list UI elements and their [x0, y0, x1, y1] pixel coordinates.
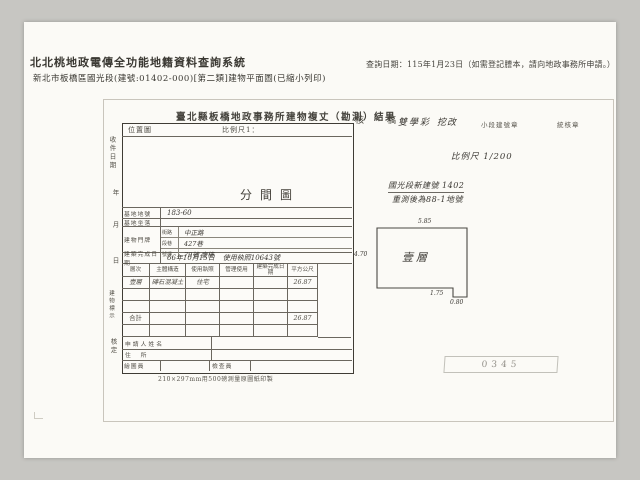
grid-cell-total-label: 合計: [122, 313, 150, 325]
checker-label: 檢查員: [210, 360, 251, 371]
grid-cell: [254, 325, 288, 337]
margin-label-building-mark: 建物標示: [107, 290, 115, 320]
grid-cell: [122, 289, 150, 301]
grid-cell: 住宅: [186, 277, 220, 289]
drafter-value: [161, 360, 210, 371]
grid-cell: [186, 325, 220, 337]
grid-cell: 壹層: [122, 277, 150, 289]
note-new-building-number: 國光段新建號 1402: [388, 180, 464, 193]
grid-cell: [254, 289, 288, 301]
grid-header-floor: 層次: [122, 264, 150, 277]
floor-plan-label: 分間圖: [240, 186, 300, 203]
grid-cell: [220, 289, 254, 301]
paper-spec-note: 210×297mm用500磅測量原圖紙印製: [158, 374, 273, 383]
scale-label: 比例尺1：: [222, 125, 259, 135]
door-sub-street: 街路 中正路: [161, 227, 352, 238]
completion-date-label: 建築完成日期: [122, 253, 161, 263]
serial-number-stamp: 0345: [443, 356, 558, 373]
measurement-grid: 層次 主體構造 使用執照 管理使用 建築完成日期 平方公尺 壹層 磚石混凝土 住…: [122, 264, 318, 337]
applicant-name-label: 申請人姓名: [122, 337, 212, 349]
dimension-notch: 0.80: [450, 299, 463, 306]
grid-cell: 26.87: [288, 277, 318, 289]
margin-label-day: 日: [110, 257, 120, 266]
lane-value: 427巷: [179, 238, 352, 248]
applicant-address-value: [212, 349, 352, 360]
corner-mark: [34, 412, 43, 419]
margin-label-approval: 核定: [108, 338, 118, 355]
use-license-value: 使用執照10643號: [223, 253, 280, 263]
applicant-address-label: 住 所: [122, 349, 212, 360]
grid-cell: [288, 325, 318, 337]
grid-cell: [122, 325, 150, 337]
dimension-top: 5.85: [418, 218, 431, 225]
grid-cell: [254, 313, 288, 325]
checker-value: [251, 360, 352, 371]
dimension-left: 4.70: [354, 251, 367, 258]
grid-cell: [186, 313, 220, 325]
grid-cell: [150, 289, 186, 301]
lot-number-value: 183-60: [161, 208, 352, 218]
grid-cell: [220, 301, 254, 313]
screen: 北北桃地政電傳全功能地籍資料查詢系統 新北市板橋區國光段(建號:01402-00…: [0, 0, 640, 480]
grid-cell: [150, 313, 186, 325]
applicant-name-value: [212, 337, 352, 349]
site-value: [161, 218, 352, 226]
drafter-row: 繪圖員 檢查員: [122, 360, 352, 371]
door-plate-subrows: 街路 中正路 段巷 427巷 號樓 79號 壹樓: [161, 227, 352, 252]
floor-plan-outline: [350, 215, 530, 315]
grid-cell: [288, 289, 318, 301]
review-signature-1: 雙學彩: [398, 115, 431, 128]
grid-cell: [288, 301, 318, 313]
document-subtitle: 新北市板橋區國光段(建號:01402-000)[第二類]建物平面圖(已縮小列印): [33, 72, 326, 84]
grid-header-structure: 主體構造: [150, 264, 186, 277]
grid-header-use: 管理使用: [220, 264, 254, 277]
drafter-label: 繪圖員: [122, 360, 161, 371]
margin-label-month: 月: [110, 221, 120, 230]
table-row-site: 基地坐落: [122, 218, 352, 227]
remark-column: [318, 264, 351, 338]
note-resurvey-lot: 重測後為88-1地號: [392, 194, 463, 205]
completion-date-value: 66年10月15日: [167, 253, 215, 263]
system-title: 北北桃地政電傳全功能地籍資料查詢系統: [30, 54, 246, 70]
grid-cell: [122, 301, 150, 313]
grid-header-date: 建築完成日期: [254, 264, 288, 277]
stamp-building-number: 小段建號章: [481, 119, 519, 129]
grid-cell: [220, 313, 254, 325]
location-map-label: 位置圖: [128, 125, 152, 135]
grid-cell: [220, 325, 254, 337]
grid-cell: [150, 301, 186, 313]
site-label: 基地坐落: [122, 218, 161, 226]
grid-cell: [254, 277, 288, 289]
review-label: 核 稿: [355, 113, 403, 126]
margin-label-year: 年: [110, 189, 120, 198]
lot-number-label: 基地地號: [122, 208, 161, 218]
scale-handwritten: 比例尺 1/200: [451, 150, 513, 162]
grid-cell: [186, 289, 220, 301]
grid-header-area: 平方公尺: [288, 264, 318, 277]
grid-cell: [186, 301, 220, 313]
grid-cell: [220, 277, 254, 289]
street-key: 街路: [161, 227, 179, 237]
street-value: 中正路: [179, 227, 352, 237]
table-row-completion-date: 建築完成日期 66年10月15日 使用執照10643號: [122, 253, 352, 264]
margin-label-receive-date: 收件日期: [107, 136, 117, 170]
grid-header-license: 使用執照: [186, 264, 220, 277]
grid-cell-total-area: 26.87: [288, 313, 318, 325]
review-signature-2: 挖改: [437, 115, 457, 128]
grid-cell: [254, 301, 288, 313]
floor-plan-floor-label: 壹層: [402, 249, 430, 265]
query-date-note: 查詢日期：115年1月23日（如需登記謄本，請向地政事務所申請。）: [366, 59, 615, 70]
lane-key: 段巷: [161, 238, 179, 248]
door-sub-lane: 段巷 427巷: [161, 238, 352, 249]
grid-cell: [150, 325, 186, 337]
dimension-bottom: 1.75: [430, 290, 443, 297]
grid-cell: 磚石混凝土: [150, 277, 186, 289]
stamp-check: 統核章: [557, 119, 580, 129]
